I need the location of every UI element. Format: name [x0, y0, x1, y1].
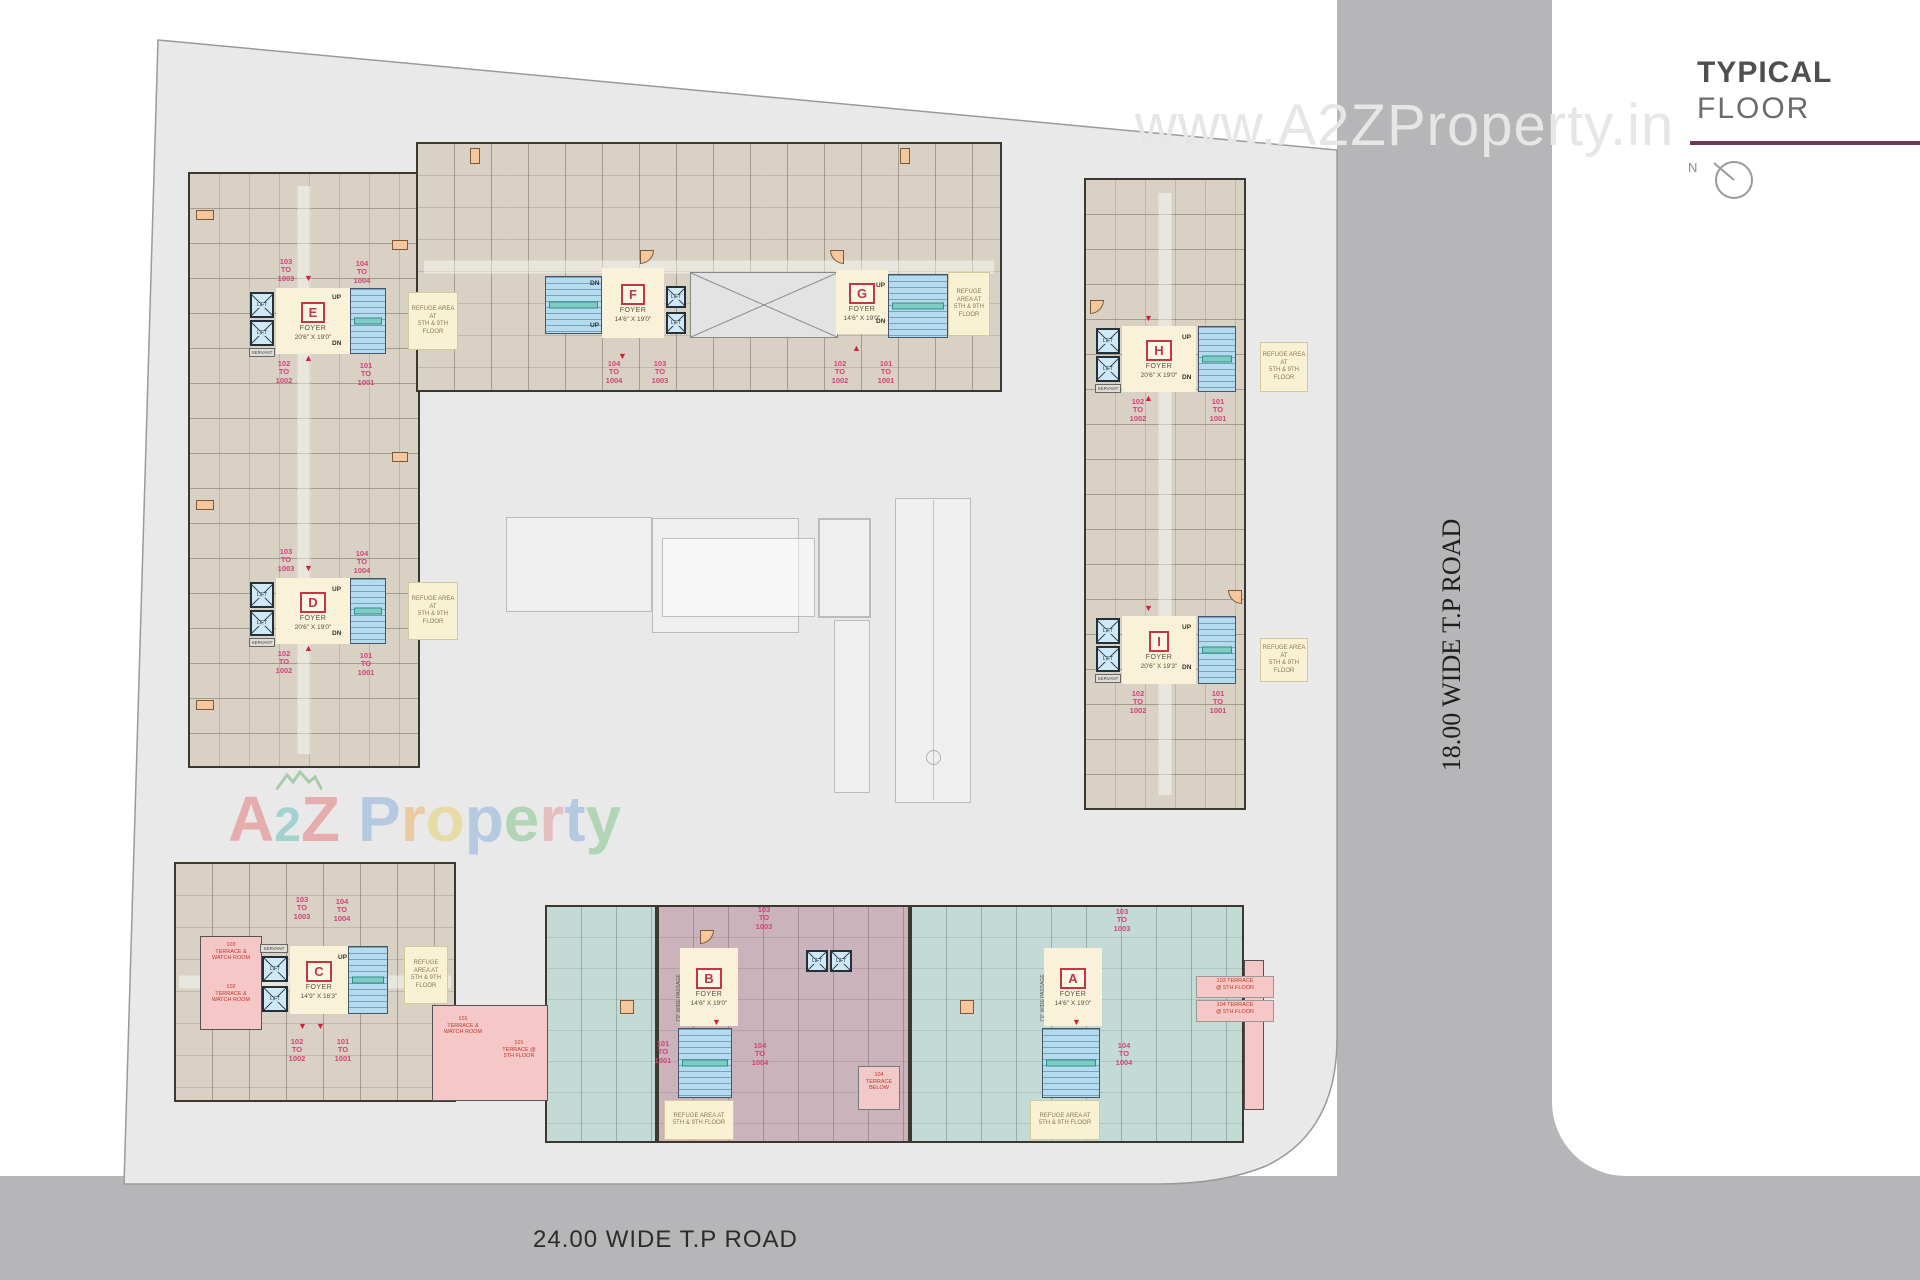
block-letter-badge: F	[621, 284, 645, 305]
foyer-dims: 14'6" X 19'0"	[1055, 1000, 1092, 1007]
servant-room: SERVANT	[1095, 674, 1121, 683]
unit-range-label: 101 TO 1001	[1200, 690, 1236, 715]
lift-label: LIFT	[256, 303, 268, 308]
staircase-h	[1198, 326, 1236, 392]
terrace-label: 103 TERRACE & WATCH ROOM	[204, 942, 258, 962]
lift-label: LIFT	[269, 997, 281, 1002]
lift-icon: LIFT	[1096, 328, 1120, 354]
balcony-patch	[900, 148, 910, 164]
foyer-word: FOYER	[1146, 654, 1173, 661]
unit-range-label: 104 TO 1004	[344, 550, 380, 575]
open-court	[690, 272, 838, 338]
stair-tread	[1202, 647, 1232, 654]
watermark-letter: P	[358, 783, 401, 855]
stair-tread	[682, 1060, 728, 1067]
lift-label: LIFT	[269, 967, 281, 972]
foyer-dims: 14'9" X 16'3"	[301, 993, 338, 1000]
entry-arrow-icon: ▼	[1144, 604, 1153, 613]
foyer-block-b: B FOYER 14'6" X 19'0"	[680, 948, 738, 1026]
refuge-area-a: REFUGE AREA AT 5TH & 9TH FLOOR	[1030, 1100, 1100, 1140]
terrace-label: 101 TERRACE & WATCH ROOM	[438, 1016, 488, 1036]
unit-range-label: 101 TO 1001	[645, 1040, 681, 1065]
unit-range-label: 103 TO 1003	[284, 896, 320, 921]
up-label: UP	[332, 586, 341, 593]
entry-arrow-icon: ▼	[1072, 1018, 1081, 1027]
servant-room: SERVANT	[249, 348, 275, 357]
servant-room: SERVANT	[1095, 384, 1121, 393]
unit-range-label: 103 TO 1003	[1104, 908, 1140, 933]
stair-tread	[354, 318, 382, 325]
up-label: UP	[332, 294, 341, 301]
unit-range-label: 101 TO 1001	[868, 360, 904, 385]
watermark-letter: y	[586, 783, 622, 855]
lift-label: LIFT	[1102, 629, 1114, 634]
terrace-label: 101 TERRACE @ 5TH FLOOR	[494, 1040, 544, 1060]
dn-label: DN	[332, 630, 341, 637]
stair-tread	[1046, 1060, 1096, 1067]
wing-left-blocks-e-d	[188, 172, 420, 768]
terrace-label: 103 TERRACE @ 5TH FLOOR	[1198, 978, 1272, 991]
entry-arrow-icon: ▲	[304, 644, 313, 653]
lift-icon: LIFT	[262, 956, 288, 982]
foyer-block-f: F FOYER 14'6" X 19'0"	[602, 268, 664, 338]
foyer-dims: 14'6" X 19'0"	[844, 315, 881, 322]
lift-icon: LIFT	[1096, 646, 1120, 672]
refuge-area-h: REFUGE AREA AT 5TH & 9TH FLOOR	[1260, 342, 1308, 392]
balcony-patch	[392, 452, 408, 462]
entry-arrow-icon: ▼	[1144, 314, 1153, 323]
balcony-patch	[392, 240, 408, 250]
foyer-block-a: A FOYER 14'6" X 19'0"	[1044, 948, 1102, 1026]
refuge-area-c: REFUGE AREA AT 5TH & 9TH FLOOR	[404, 946, 448, 1004]
stair-tread	[352, 977, 384, 984]
unit-range-label: 101 TO 1001	[348, 362, 384, 387]
lift-label: LIFT	[1102, 339, 1114, 344]
foyer-word: FOYER	[620, 307, 647, 314]
top-watermark: www.A2ZProperty.in	[1135, 92, 1674, 159]
floor-plan-canvas: 101 TERRACE & WATCH ROOM 101 TERRACE @ 5…	[0, 0, 1920, 1280]
foyer-word: FOYER	[1060, 991, 1087, 998]
staircase-b	[678, 1028, 732, 1098]
road-label-right: 18.00 WIDE T.P ROAD	[1437, 495, 1467, 795]
watermark-letter: r	[401, 783, 426, 855]
block-letter-badge: E	[301, 302, 326, 323]
block-letter-badge: G	[849, 283, 875, 304]
lift-label: LIFT	[1102, 367, 1114, 372]
corridor-spine	[1159, 193, 1172, 796]
balcony-patch	[620, 1000, 634, 1014]
block-letter-badge: I	[1149, 631, 1169, 652]
refuge-area-i: REFUGE AREA AT 5TH & 9TH FLOOR	[1260, 638, 1308, 682]
up-label: UP	[590, 322, 599, 329]
lift-label: LIFT	[835, 959, 847, 964]
unit-range-label: 101 TO 1001	[325, 1038, 361, 1063]
lift-icon: LIFT	[830, 950, 852, 972]
balcony-patch	[470, 148, 480, 164]
lift-icon: LIFT	[806, 950, 828, 972]
watermark-letter: p	[465, 783, 504, 855]
refuge-area-d: REFUGE AREA AT 5TH & 9TH FLOOR	[408, 582, 458, 640]
up-label: UP	[338, 954, 347, 961]
unit-range-label: 102 TO 1002	[279, 1038, 315, 1063]
stair-tread	[354, 608, 382, 615]
foyer-word: FOYER	[1146, 363, 1173, 370]
balcony-patch	[196, 210, 214, 220]
watermark-letter: 2	[274, 799, 301, 852]
staircase-a	[1042, 1028, 1100, 1098]
foyer-word: FOYER	[696, 991, 723, 998]
entry-arrow-icon: ▲	[1144, 394, 1153, 403]
refuge-area-b: REFUGE AREA AT 5TH & 9TH FLOOR	[664, 1100, 734, 1140]
foyer-word: FOYER	[300, 325, 327, 332]
balcony-patch	[196, 700, 214, 710]
block-letter-badge: B	[696, 968, 721, 989]
foyer-word: FOYER	[849, 306, 876, 313]
amenity-outline	[818, 518, 871, 618]
lift-label: LIFT	[256, 621, 268, 626]
unit-range-label: 104 TO 1004	[344, 260, 380, 285]
lift-icon: LIFT	[250, 292, 274, 318]
stair-tread	[549, 302, 598, 309]
entry-arrow-icon: ▼	[298, 1022, 307, 1031]
terrace-label: 102 TERRACE & WATCH ROOM	[204, 984, 258, 1004]
lift-icon: LIFT	[262, 986, 288, 1012]
lift-icon: LIFT	[666, 312, 686, 334]
dn-label: DN	[332, 340, 341, 347]
unit-range-label: 102 TO 1002	[822, 360, 858, 385]
terrace-label: 104 TERRACE BELOW	[860, 1072, 898, 1092]
servant-room: SERVANT	[260, 944, 288, 953]
balcony-patch	[960, 1000, 974, 1014]
wing-top-blocks-f-g	[416, 142, 1002, 392]
refuge-area-e: REFUGE AREA AT 5TH & 9TH FLOOR	[408, 292, 458, 350]
up-label: UP	[876, 282, 885, 289]
foyer-dims: 14'6" X 19'0"	[615, 316, 652, 323]
foyer-dims: 14'6" X 19'0"	[691, 1000, 728, 1007]
entry-arrow-icon: ▲	[304, 354, 313, 363]
foyer-dims: 20'6" X 19'0"	[1141, 372, 1178, 379]
foyer-dims: 20'6" X 19'3"	[1141, 663, 1178, 670]
compass-north-label: N	[1688, 160, 1697, 175]
lift-label: LIFT	[1102, 657, 1114, 662]
lift-label: LIFT	[670, 295, 682, 300]
lift-icon: LIFT	[250, 610, 274, 636]
page-title-line2: FLOOR	[1697, 92, 1810, 126]
staircase-c	[348, 946, 388, 1014]
unit-range-label: 102 TO 1002	[266, 650, 302, 675]
unit-range-label: 103 TO 1003	[642, 360, 678, 385]
unit-range-label: 104 TO 1004	[1106, 1042, 1142, 1067]
amenity-outline	[834, 620, 870, 793]
unit-range-label: 101 TO 1001	[348, 652, 384, 677]
foyer-word: FOYER	[300, 615, 327, 622]
compass-icon	[1706, 152, 1758, 204]
amenity-circle	[926, 750, 941, 765]
staircase-d	[350, 578, 386, 644]
lift-label: LIFT	[670, 321, 682, 326]
lift-icon: LIFT	[250, 582, 274, 608]
entry-arrow-icon: ▲	[852, 344, 861, 353]
unit-range-label: 103 TO 1003	[746, 906, 782, 931]
unit-range-label: 103 TO 1003	[268, 258, 304, 283]
watermark-letter: e	[504, 783, 540, 855]
unit-range-label: 101 TO 1001	[1200, 398, 1236, 423]
entry-arrow-icon: ▼	[316, 1022, 325, 1031]
servant-room: SERVANT	[249, 638, 275, 647]
dn-label: DN	[1182, 664, 1191, 671]
lift-icon: LIFT	[1096, 356, 1120, 382]
pool-outline	[662, 538, 815, 617]
watermark-letter: t	[564, 783, 585, 855]
foyer-word: FOYER	[306, 984, 333, 991]
lift-icon: LIFT	[1096, 618, 1120, 644]
unit-range-label: 102 TO 1002	[1120, 690, 1156, 715]
block-letter-badge: D	[300, 592, 325, 613]
foyer-dims: 20'6" X 19'0"	[295, 334, 332, 341]
stair-tread	[1202, 356, 1232, 363]
refuge-area-g: REFUGE AREA AT 5TH & 9TH FLOOR	[948, 272, 990, 336]
entry-arrow-icon: ▼	[304, 564, 313, 573]
page-title-line1: TYPICAL	[1697, 56, 1832, 90]
stair-tread	[892, 303, 944, 310]
block-letter-badge: A	[1060, 968, 1085, 989]
lift-label: LIFT	[256, 593, 268, 598]
dn-label: DN	[876, 318, 885, 325]
watermark-letter: Z	[301, 783, 340, 855]
wing-ba-teal-left	[545, 905, 657, 1143]
entry-arrow-icon: ▼	[304, 274, 313, 283]
foyer-dims: 20'6" X 19'0"	[295, 624, 332, 631]
title-rule	[1690, 141, 1920, 145]
entry-arrow-icon: ▼	[618, 352, 627, 361]
watermark-letter: r	[539, 783, 564, 855]
lift-label: LIFT	[811, 959, 823, 964]
lift-icon: LIFT	[250, 320, 274, 346]
dn-label: DN	[590, 280, 599, 287]
unit-range-label: 102 TO 1002	[266, 360, 302, 385]
unit-range-label: 104 TO 1004	[596, 360, 632, 385]
block-letter-badge: C	[306, 961, 331, 982]
watermark-letter: o	[426, 783, 465, 855]
staircase-i	[1198, 616, 1236, 684]
watermark-letter: A	[228, 783, 274, 855]
terrace-label: 104 TERRACE @ 5TH FLOOR	[1198, 1002, 1272, 1015]
lift-icon: LIFT	[666, 286, 686, 308]
unit-range-label: 104 TO 1004	[324, 898, 360, 923]
entry-arrow-icon: ▼	[712, 1018, 721, 1027]
wing-right-blocks-h-i	[1084, 178, 1246, 810]
amenity-outline	[506, 517, 652, 612]
center-watermark: A2ZProperty	[228, 782, 621, 856]
staircase-e	[350, 288, 386, 354]
unit-range-label: 103 TO 1003	[268, 548, 304, 573]
road-label-bottom: 24.00 WIDE T.P ROAD	[533, 1226, 798, 1254]
up-label: UP	[1182, 334, 1191, 341]
dn-label: DN	[1182, 374, 1191, 381]
block-letter-badge: H	[1146, 340, 1171, 361]
up-label: UP	[1182, 624, 1191, 631]
unit-range-label: 104 TO 1004	[742, 1042, 778, 1067]
lift-label: LIFT	[256, 331, 268, 336]
balcony-patch	[196, 500, 214, 510]
staircase-g	[888, 274, 948, 338]
